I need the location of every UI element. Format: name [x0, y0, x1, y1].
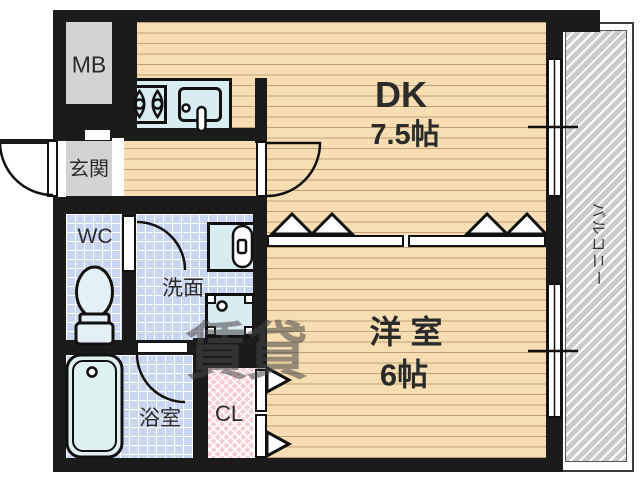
- wc-label: WC: [78, 225, 113, 249]
- entrance-door-open-line: [0, 139, 53, 144]
- sink-icon: [178, 87, 222, 122]
- balcony-label: バルコニー: [589, 203, 610, 288]
- wall-corridor-bottom: [53, 196, 267, 214]
- bath-door-opening: [137, 342, 188, 353]
- washer-pan-corner: [244, 294, 254, 304]
- entrance-step-strip: [112, 138, 124, 196]
- wc-door-leaf: [122, 215, 136, 272]
- partition-panel-left: [267, 235, 404, 247]
- bathroom-label: 浴室: [139, 402, 181, 432]
- western-room-size-label: 6帖: [380, 350, 428, 395]
- washer-pan-corner: [206, 294, 216, 304]
- window-western: [547, 283, 562, 418]
- wall-notch: [85, 130, 110, 140]
- wall-left: [53, 10, 66, 472]
- dk-size-label: 7.5帖: [370, 111, 439, 153]
- washbasin-icon: [207, 222, 257, 272]
- floor-plan: MB 玄関 DK 7.5帖 洋 室 6帖 WC 洗面 浴室 CL バルコニー 賃…: [0, 0, 640, 480]
- window-dk: [547, 58, 562, 197]
- dk-door-leaf: [256, 141, 267, 197]
- wall-bottom: [53, 458, 563, 472]
- closet-label: CL: [215, 401, 243, 427]
- entrance-door-leaf: [47, 140, 58, 197]
- entrance-label: 玄関: [69, 153, 109, 182]
- entrance-door-arc: [0, 142, 53, 195]
- western-room-label: 洋 室: [370, 307, 443, 353]
- watermark-text: 賃貸: [186, 322, 306, 384]
- washroom-label: 洗面: [162, 272, 204, 302]
- wall-corridor-top: [112, 128, 267, 141]
- partition-panel-right: [408, 235, 546, 247]
- wall-top: [53, 10, 600, 22]
- closet-door-panel: [255, 414, 267, 458]
- wall-mb-kitchen: [112, 22, 137, 141]
- dk-label: DK: [375, 74, 427, 116]
- wall-dk-stub: [255, 78, 267, 143]
- meter-box-label: MB: [72, 52, 107, 79]
